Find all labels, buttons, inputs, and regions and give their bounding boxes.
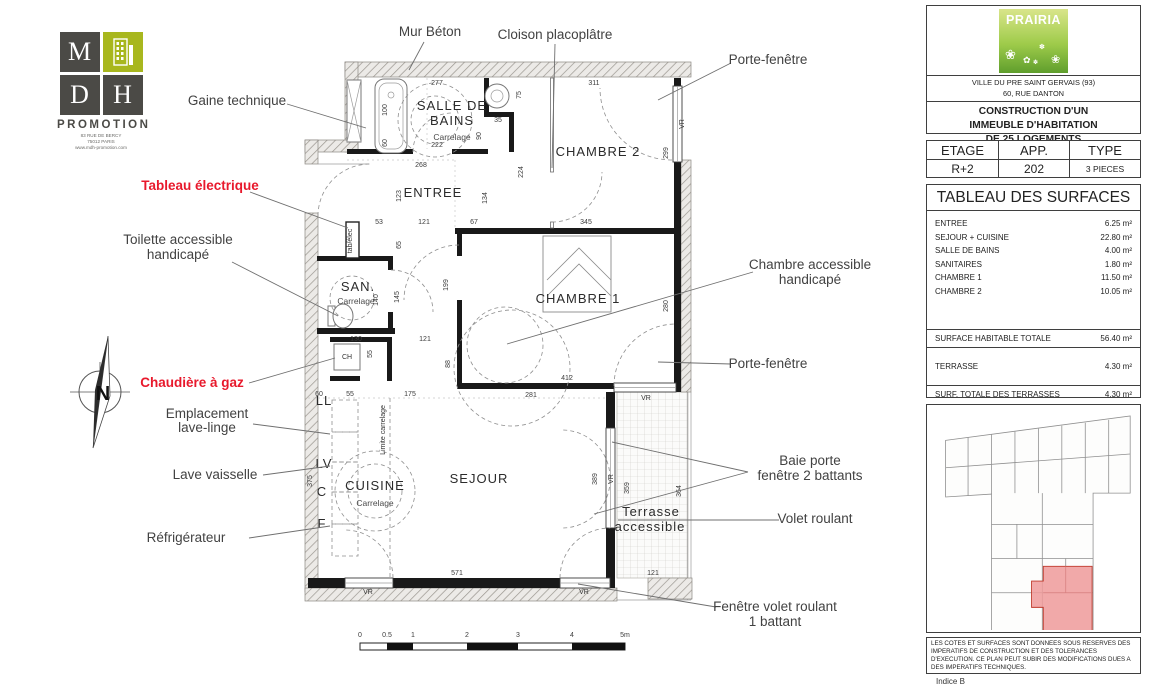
project-street: 60, RUE DANTON bbox=[927, 89, 1140, 100]
app-header: APP. bbox=[998, 141, 1069, 159]
surface-row: SALLE DE BAINS 4.00 m² bbox=[935, 244, 1132, 258]
room-label-terrasse: Terrasse bbox=[622, 504, 680, 519]
scale-bar: 0 0.5 1 2 3 4 5m bbox=[358, 632, 630, 650]
vr-label: VR bbox=[679, 119, 686, 129]
surface-label: CHAMBRE 2 bbox=[935, 285, 982, 299]
dimension: 121 bbox=[419, 336, 431, 343]
dimension: 60 bbox=[315, 391, 323, 398]
project-city: VILLE DU PRE SAINT GERVAIS (93) bbox=[927, 78, 1140, 89]
etage-header: ETAGE bbox=[927, 141, 998, 159]
dimension: 224 bbox=[518, 166, 525, 178]
dimension: 280 bbox=[663, 300, 670, 312]
callout-lave-linge-2: lave-linge bbox=[178, 420, 236, 435]
unit-info-table: ETAGE APP. TYPE R+2 202 3 PIECES bbox=[926, 140, 1141, 178]
key-plan-thumbnail bbox=[926, 404, 1141, 633]
compass-north-label: N bbox=[96, 383, 110, 405]
dimension: 75 bbox=[516, 91, 523, 99]
surface-value: 10.05 m² bbox=[1100, 285, 1132, 299]
appliance-label-f: F bbox=[318, 516, 327, 531]
appliance-label-c: C bbox=[317, 484, 327, 499]
dimension: 53 bbox=[375, 219, 383, 226]
surface-row: CHAMBRE 1 11.50 m² bbox=[935, 271, 1132, 285]
dimension: 55 bbox=[346, 391, 354, 398]
dimension: 55 bbox=[367, 350, 374, 358]
surface-label: CHAMBRE 1 bbox=[935, 271, 982, 285]
vr-label: VR bbox=[363, 589, 373, 596]
utility-duct bbox=[347, 80, 361, 142]
surface-label: SANITAIRES bbox=[935, 258, 982, 272]
type-value: 3 PIECES bbox=[1069, 159, 1140, 177]
room-label-chambre-1: CHAMBRE 1 bbox=[536, 291, 621, 306]
surface-row: ENTREE 6.25 m² bbox=[935, 217, 1132, 231]
surface-row: SANITAIRES 1.80 m² bbox=[935, 258, 1132, 272]
vr-label: VR bbox=[641, 395, 651, 402]
dimension: 145 bbox=[394, 291, 401, 303]
room-sub-carrelage-sdb: Carrelage bbox=[433, 132, 471, 142]
callout-chambre-accessible-2: handicapé bbox=[779, 272, 841, 287]
dimension: 90 bbox=[476, 132, 483, 140]
callout-toilette-2: handicapé bbox=[147, 247, 209, 262]
disclaimer-box: LES COTES ET SURFACES SONT DONNEES SOUS … bbox=[926, 637, 1141, 674]
surfaces-title: TABLEAU DES SURFACES bbox=[927, 185, 1140, 211]
tab-elec-label: tab/élec bbox=[347, 228, 354, 253]
callout-lave-vaisselle: Lave vaisselle bbox=[173, 467, 258, 482]
surface-value: 22.80 m² bbox=[1100, 231, 1132, 245]
type-header: TYPE bbox=[1069, 141, 1140, 159]
dimension: 281 bbox=[525, 392, 537, 399]
project-line-2: IMMEUBLE D'HABITATION bbox=[927, 119, 1140, 133]
surface-value: 1.80 m² bbox=[1105, 258, 1132, 272]
etage-value: R+2 bbox=[927, 159, 998, 177]
dimension: 88 bbox=[445, 360, 452, 368]
callout-chaudiere: Chaudière à gaz bbox=[140, 375, 244, 390]
dimension: 571 bbox=[451, 570, 463, 577]
scale-tick: 1 bbox=[411, 632, 415, 639]
callout-lave-linge-1: Emplacement bbox=[166, 406, 249, 421]
surface-value: 6.25 m² bbox=[1105, 217, 1132, 231]
room-sub-carrelage-san: Carrelage bbox=[337, 296, 375, 306]
room-label-sejour: SEJOUR bbox=[450, 471, 509, 486]
room-sub-carrelage-cuisine: Carrelage bbox=[356, 498, 394, 508]
callout-cloison: Cloison placoplâtre bbox=[498, 27, 613, 42]
prairia-logo: PRAIRIA ❀ ✿ ✽ ❀ ✽ bbox=[999, 9, 1068, 73]
surface-value: 4.00 m² bbox=[1105, 244, 1132, 258]
callout-porte-fenetre-milieu: Porte-fenêtre bbox=[729, 356, 808, 371]
dimension: 175 bbox=[404, 391, 416, 398]
mdh-letter-d: D bbox=[60, 75, 100, 115]
room-label-salle-de-bains: SALLE DE bbox=[417, 98, 487, 113]
surface-total-label: SURFACE HABITABLE TOTALE bbox=[935, 334, 1051, 343]
room-label-terrasse-2: accessible bbox=[615, 519, 686, 534]
dimension: 277 bbox=[431, 80, 443, 87]
mdh-website: www.mdh-promotion.com bbox=[57, 145, 145, 151]
surfaces-table: TABLEAU DES SURFACES ENTREE 6.25 m² SEJO… bbox=[926, 184, 1141, 398]
scale-tick: 0.5 bbox=[382, 632, 392, 639]
dimension: 140 bbox=[373, 294, 380, 306]
surface-value: 11.50 m² bbox=[1101, 271, 1132, 285]
room-label-salle-de-bains-2: BAINS bbox=[430, 113, 474, 128]
callout-volet-roulant: Volet roulant bbox=[777, 511, 852, 526]
dimension: 375 bbox=[307, 475, 314, 487]
room-label-san: SAN. bbox=[341, 279, 375, 294]
appliance-label-lv: LV bbox=[316, 456, 333, 471]
callout-baie-2: fenêtre 2 battants bbox=[757, 468, 862, 483]
project-header-box: PRAIRIA ❀ ✿ ✽ ❀ ✽ VILLE DU PRE SAINT GER… bbox=[926, 5, 1141, 134]
mdh-letter-m: M bbox=[60, 32, 100, 72]
dimension: 134 bbox=[482, 192, 489, 204]
callout-chambre-accessible-1: Chambre accessible bbox=[749, 257, 871, 272]
scale-tick: 2 bbox=[465, 632, 469, 639]
dimension: 268 bbox=[415, 162, 427, 169]
surface-label: SEJOUR + CUISINE bbox=[935, 231, 1009, 245]
dimension: 299 bbox=[663, 147, 670, 159]
callout-baie-1: Baie porte bbox=[779, 453, 841, 468]
disclaimer-text: LES COTES ET SURFACES SONT DONNEES SOUS … bbox=[931, 640, 1130, 671]
callout-fenetre-volet-1: Fenêtre volet roulant bbox=[713, 599, 837, 614]
building-icon bbox=[103, 32, 143, 72]
vr-label: VR bbox=[608, 474, 615, 484]
dimension: 412 bbox=[561, 375, 573, 382]
scale-tick: 4 bbox=[570, 632, 574, 639]
surface-row: CHAMBRE 2 10.05 m² bbox=[935, 285, 1132, 299]
surface-total-row: SURFACE HABITABLE TOTALE 56.40 m² bbox=[927, 329, 1140, 347]
dimension: 60 bbox=[382, 139, 389, 147]
mdh-promotion-label: PROMOTION bbox=[57, 119, 145, 131]
dimension: 199 bbox=[443, 279, 450, 291]
terrasses-total-label: SURF. TOTALE DES TERRASSES bbox=[935, 390, 1060, 399]
terrasse-label: TERRASSE bbox=[935, 362, 978, 371]
callout-porte-fenetre-haut: Porte-fenêtre bbox=[729, 52, 808, 67]
callout-fenetre-volet-2: 1 battant bbox=[749, 614, 802, 629]
dimension: 121 bbox=[647, 570, 659, 577]
floor-plan-sheet: tab/élec CH bbox=[0, 0, 1170, 686]
terrasses-total-row: SURF. TOTALE DES TERRASSES 4.30 m² bbox=[927, 385, 1140, 403]
dimension: 67 bbox=[470, 219, 478, 226]
surface-row: SEJOUR + CUISINE 22.80 m² bbox=[935, 231, 1132, 245]
app-value: 202 bbox=[998, 159, 1069, 177]
mdh-promotion-logo: M D H PROMOTION 83 RUE DE BERCY 75012 PA… bbox=[57, 32, 145, 152]
dimension: 222 bbox=[431, 142, 443, 149]
callout-gaine-technique: Gaine technique bbox=[188, 93, 286, 108]
dimension: 121 bbox=[418, 219, 430, 226]
boiler-label: CH bbox=[342, 354, 352, 361]
revision-index: Indice B bbox=[936, 677, 965, 686]
vr-label: VR bbox=[579, 589, 589, 596]
dimension: 311 bbox=[588, 80, 599, 87]
dimension: 389 bbox=[592, 473, 599, 485]
callout-mur-beton: Mur Béton bbox=[399, 24, 461, 39]
scale-tick: 5m bbox=[620, 632, 630, 639]
surface-label: ENTREE bbox=[935, 217, 967, 231]
callout-toilette-1: Toilette accessible bbox=[123, 232, 233, 247]
project-line-1: CONSTRUCTION D'UN bbox=[927, 105, 1140, 119]
surface-label: SALLE DE BAINS bbox=[935, 244, 999, 258]
scale-tick: 3 bbox=[516, 632, 520, 639]
electrical-panel: tab/élec bbox=[346, 222, 359, 258]
terrasse-value: 4.30 m² bbox=[1105, 362, 1132, 371]
room-label-chambre-2: CHAMBRE 2 bbox=[556, 144, 641, 159]
scale-tick: 0 bbox=[358, 632, 362, 639]
dimension: 100 bbox=[382, 104, 389, 116]
room-label-cuisine: CUISINE bbox=[345, 478, 405, 493]
dimension: 35 bbox=[494, 117, 502, 124]
callout-refrigerateur: Réfrigérateur bbox=[147, 530, 226, 545]
mdh-letter-h: H bbox=[103, 75, 143, 115]
room-label-entree: ENTREE bbox=[404, 185, 463, 200]
dimension: 130 bbox=[350, 336, 362, 343]
limite-carrelage-label: Limite carrelage bbox=[380, 405, 387, 455]
dimension: 345 bbox=[580, 219, 592, 226]
prairia-logo-text: PRAIRIA bbox=[999, 13, 1068, 27]
dimension: 65 bbox=[396, 241, 403, 249]
callout-tableau-electrique: Tableau électrique bbox=[141, 178, 259, 193]
terrasse-row: TERRASSE 4.30 m² bbox=[927, 347, 1140, 385]
terrasses-total-value: 4.30 m² bbox=[1105, 390, 1132, 399]
compass-icon: N bbox=[70, 336, 130, 448]
dimension: 359 bbox=[624, 482, 631, 494]
dimension: 123 bbox=[396, 190, 403, 202]
surface-total-value: 56.40 m² bbox=[1100, 334, 1132, 343]
